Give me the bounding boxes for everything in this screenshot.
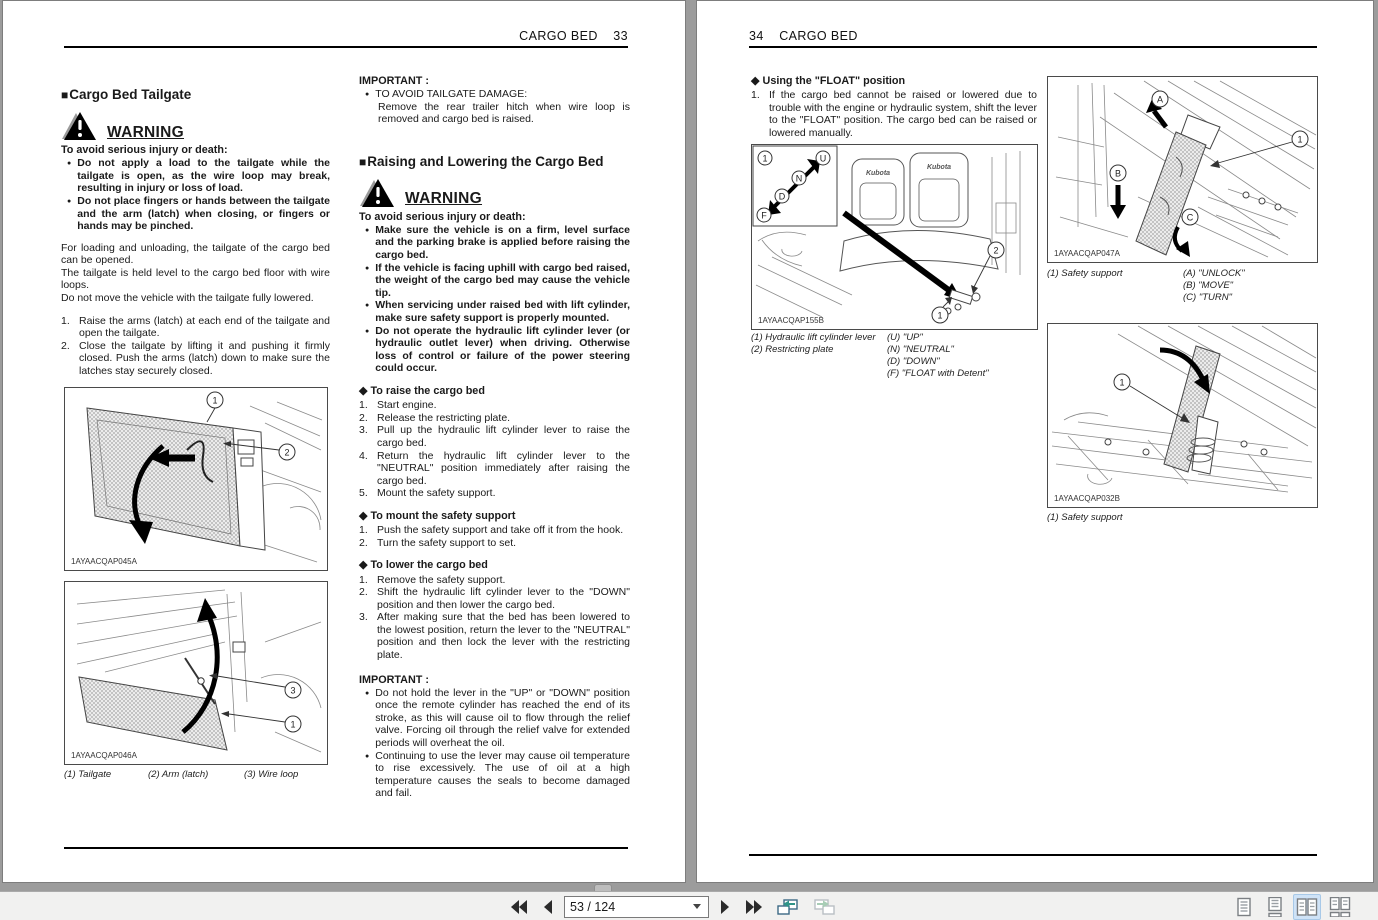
figure-callout: 1 [937, 311, 942, 321]
continuous-facing-view-button[interactable] [1326, 894, 1354, 920]
figure-callout: 1 [290, 720, 295, 730]
next-view-icon [812, 898, 836, 916]
figure-caption: (1) Safety support (A) "UNLOCK" (B) "MOV… [1047, 268, 1319, 303]
warning-bullet: When servicing under raised bed with lif… [365, 299, 630, 324]
figure-callout: 1 [1119, 378, 1124, 388]
page-indicator: 53 / 124 [570, 900, 693, 914]
important-label: IMPORTANT : [359, 674, 630, 687]
figure-code: 1AYAACQAP045A [71, 557, 138, 566]
figure-callout: F [761, 211, 767, 221]
seat-logo-label: Kubota [927, 164, 951, 171]
dropdown-arrow-icon [693, 904, 701, 909]
figure-tailgate-closed: 1 2 1AYAACQAP045A [64, 387, 328, 571]
header-title: CARGO BED [779, 29, 858, 43]
warning-bullet: Do not operate the hydraulic lift cylind… [365, 325, 630, 375]
procedure-step: 1.Raise the arms (latch) at each end of … [61, 315, 330, 340]
document-page-33: CARGO BED 33 Cargo Bed Tailgate WARNING … [2, 0, 686, 883]
figure-safety-support-stored: 1 1AYAACQAP032B [1047, 323, 1318, 508]
facing-pages-view-button[interactable] [1293, 894, 1321, 920]
procedure-step: 2.Release the restricting plate. [359, 412, 630, 425]
procedure-step: 5.Mount the safety support. [359, 487, 630, 500]
page-number-combobox[interactable]: 53 / 124 [564, 896, 709, 918]
important-bullet: TO AVOID TAILGATE DAMAGE: [365, 88, 630, 101]
continuous-view-icon [1265, 897, 1285, 917]
previous-page-button[interactable] [538, 897, 558, 917]
section-heading: Cargo Bed Tailgate [61, 87, 330, 103]
single-page-view-button[interactable] [1231, 894, 1257, 920]
paragraph: The tailgate is held level to the cargo … [61, 267, 330, 292]
section-heading: Raising and Lowering the Cargo Bed [359, 154, 630, 170]
procedure-step: 1.Start engine. [359, 399, 630, 412]
figure-callout: 1 [1297, 135, 1302, 145]
important-bullet: Do not hold the lever in the "UP" or "DO… [365, 687, 630, 750]
header-rule [64, 46, 628, 48]
figure-tailgate-open: 3 1 1AYAACQAP046A [64, 581, 328, 765]
document-page-34: 34 CARGO BED Using the "FLOAT" position … [696, 0, 1374, 883]
warning-label: WARNING [107, 124, 184, 143]
procedure-step: 1.Push the safety support and take off i… [359, 524, 630, 537]
procedure-step: 4.Return the hydraulic lift cylinder lev… [359, 450, 630, 488]
procedure-heading: To lower the cargo bed [359, 559, 630, 572]
continuous-facing-view-icon [1329, 897, 1351, 917]
paragraph: Do not move the vehicle with the tailgat… [61, 292, 330, 305]
figure-code: 1AYAACQAP032B [1054, 494, 1120, 503]
page-navigation-group: 53 / 124 [506, 892, 839, 920]
warning-bullet: Make sure the vehicle is on a firm, leve… [365, 224, 630, 262]
figure-callout: C [1187, 213, 1194, 223]
warning-bullet: If the vehicle is facing uphill with car… [365, 262, 630, 300]
figure-callout: 3 [290, 686, 295, 696]
facing-pages-view-icon [1296, 897, 1318, 917]
figure-callout: U [820, 154, 827, 164]
paragraph: For loading and unloading, the tailgate … [61, 242, 330, 267]
previous-page-icon [541, 899, 555, 915]
warning-header: WARNING [359, 178, 630, 209]
procedure-step: 2.Shift the hydraulic lift cylinder leve… [359, 586, 630, 611]
header-page-number: 33 [613, 29, 628, 43]
warning-triangle-icon [359, 178, 395, 209]
seat-logo-label: Kubota [866, 170, 890, 177]
page-layout-group [1231, 892, 1354, 920]
important-bullet: Continuing to use the lever may cause oi… [365, 750, 630, 800]
procedure-heading: To mount the safety support [359, 510, 630, 523]
figure-callout: 1 [212, 396, 217, 406]
footer-rule [64, 847, 628, 849]
figure-callout: 2 [284, 448, 289, 458]
figure-caption: (1) Hydraulic lift cylinder lever (2) Re… [751, 332, 1041, 379]
header-rule [749, 46, 1317, 48]
procedure-step: 3.After making sure that the bed has bee… [359, 611, 630, 661]
warning-triangle-icon [61, 111, 97, 142]
warning-bullet: Do not apply a load to the tailgate whil… [67, 157, 330, 195]
last-page-button[interactable] [741, 897, 767, 917]
figure-safety-support-set: A B C 1 1AYAACQAP047A [1047, 76, 1318, 263]
procedure-step: 1.If the cargo bed cannot be raised or l… [751, 89, 1037, 139]
procedure-step: 3.Pull up the hydraulic lift cylinder le… [359, 424, 630, 449]
warning-lead: To avoid serious injury or death: [359, 211, 630, 224]
page-header: 34 CARGO BED [749, 29, 858, 43]
warning-header: WARNING [61, 111, 330, 142]
figure-callout: B [1115, 169, 1121, 179]
first-page-button[interactable] [506, 897, 532, 917]
left-column: Using the "FLOAT" position 1.If the carg… [751, 75, 1037, 140]
figure-code: 1AYAACQAP047A [1054, 249, 1121, 258]
figure-callout: 2 [993, 246, 998, 256]
figure-callout: D [779, 192, 786, 202]
first-page-icon [509, 899, 529, 915]
single-page-view-icon [1234, 897, 1254, 917]
next-page-icon [718, 899, 732, 915]
header-title: CARGO BED [519, 29, 598, 43]
figure-lift-cylinder-lever: 1 U N D F Kubota Kubota [751, 144, 1038, 330]
previous-view-button[interactable] [773, 896, 803, 918]
previous-view-icon [776, 898, 800, 916]
next-page-button[interactable] [715, 897, 735, 917]
continuous-view-button[interactable] [1262, 894, 1288, 920]
figure-caption: (1) Tailgate (2) Arm (latch) (3) Wire lo… [64, 769, 334, 780]
important-label: IMPORTANT : [359, 75, 630, 88]
figure-code: 1AYAACQAP155B [758, 316, 824, 325]
procedure-step: 2.Close the tailgate by lifting it and p… [61, 340, 330, 378]
page-header: CARGO BED 33 [519, 29, 628, 43]
figure-caption: (1) Safety support [1047, 512, 1319, 523]
warning-bullet: Do not place fingers or hands between th… [67, 195, 330, 233]
last-page-icon [744, 899, 764, 915]
footer-rule [749, 854, 1317, 856]
figure-code: 1AYAACQAP046A [71, 751, 138, 760]
left-column: Cargo Bed Tailgate WARNING To avoid seri… [61, 87, 330, 378]
viewer-toolbar: 53 / 124 [0, 891, 1378, 920]
figure-callout: N [796, 174, 803, 184]
procedure-heading: To raise the cargo bed [359, 385, 630, 398]
procedure-step: 1.Remove the safety support. [359, 574, 630, 587]
warning-lead: To avoid serious injury or death: [61, 144, 330, 157]
right-column: IMPORTANT : TO AVOID TAILGATE DAMAGE: Re… [359, 75, 630, 800]
warning-label: WARNING [405, 190, 482, 209]
header-page-number: 34 [749, 29, 764, 43]
figure-callout: A [1157, 95, 1163, 105]
next-view-button[interactable] [809, 896, 839, 918]
important-text: Remove the rear trailer hitch when wire … [378, 101, 630, 126]
procedure-heading: Using the "FLOAT" position [751, 75, 1037, 88]
procedure-step: 2.Turn the safety support to set. [359, 537, 630, 550]
figure-callout: 1 [762, 154, 767, 164]
